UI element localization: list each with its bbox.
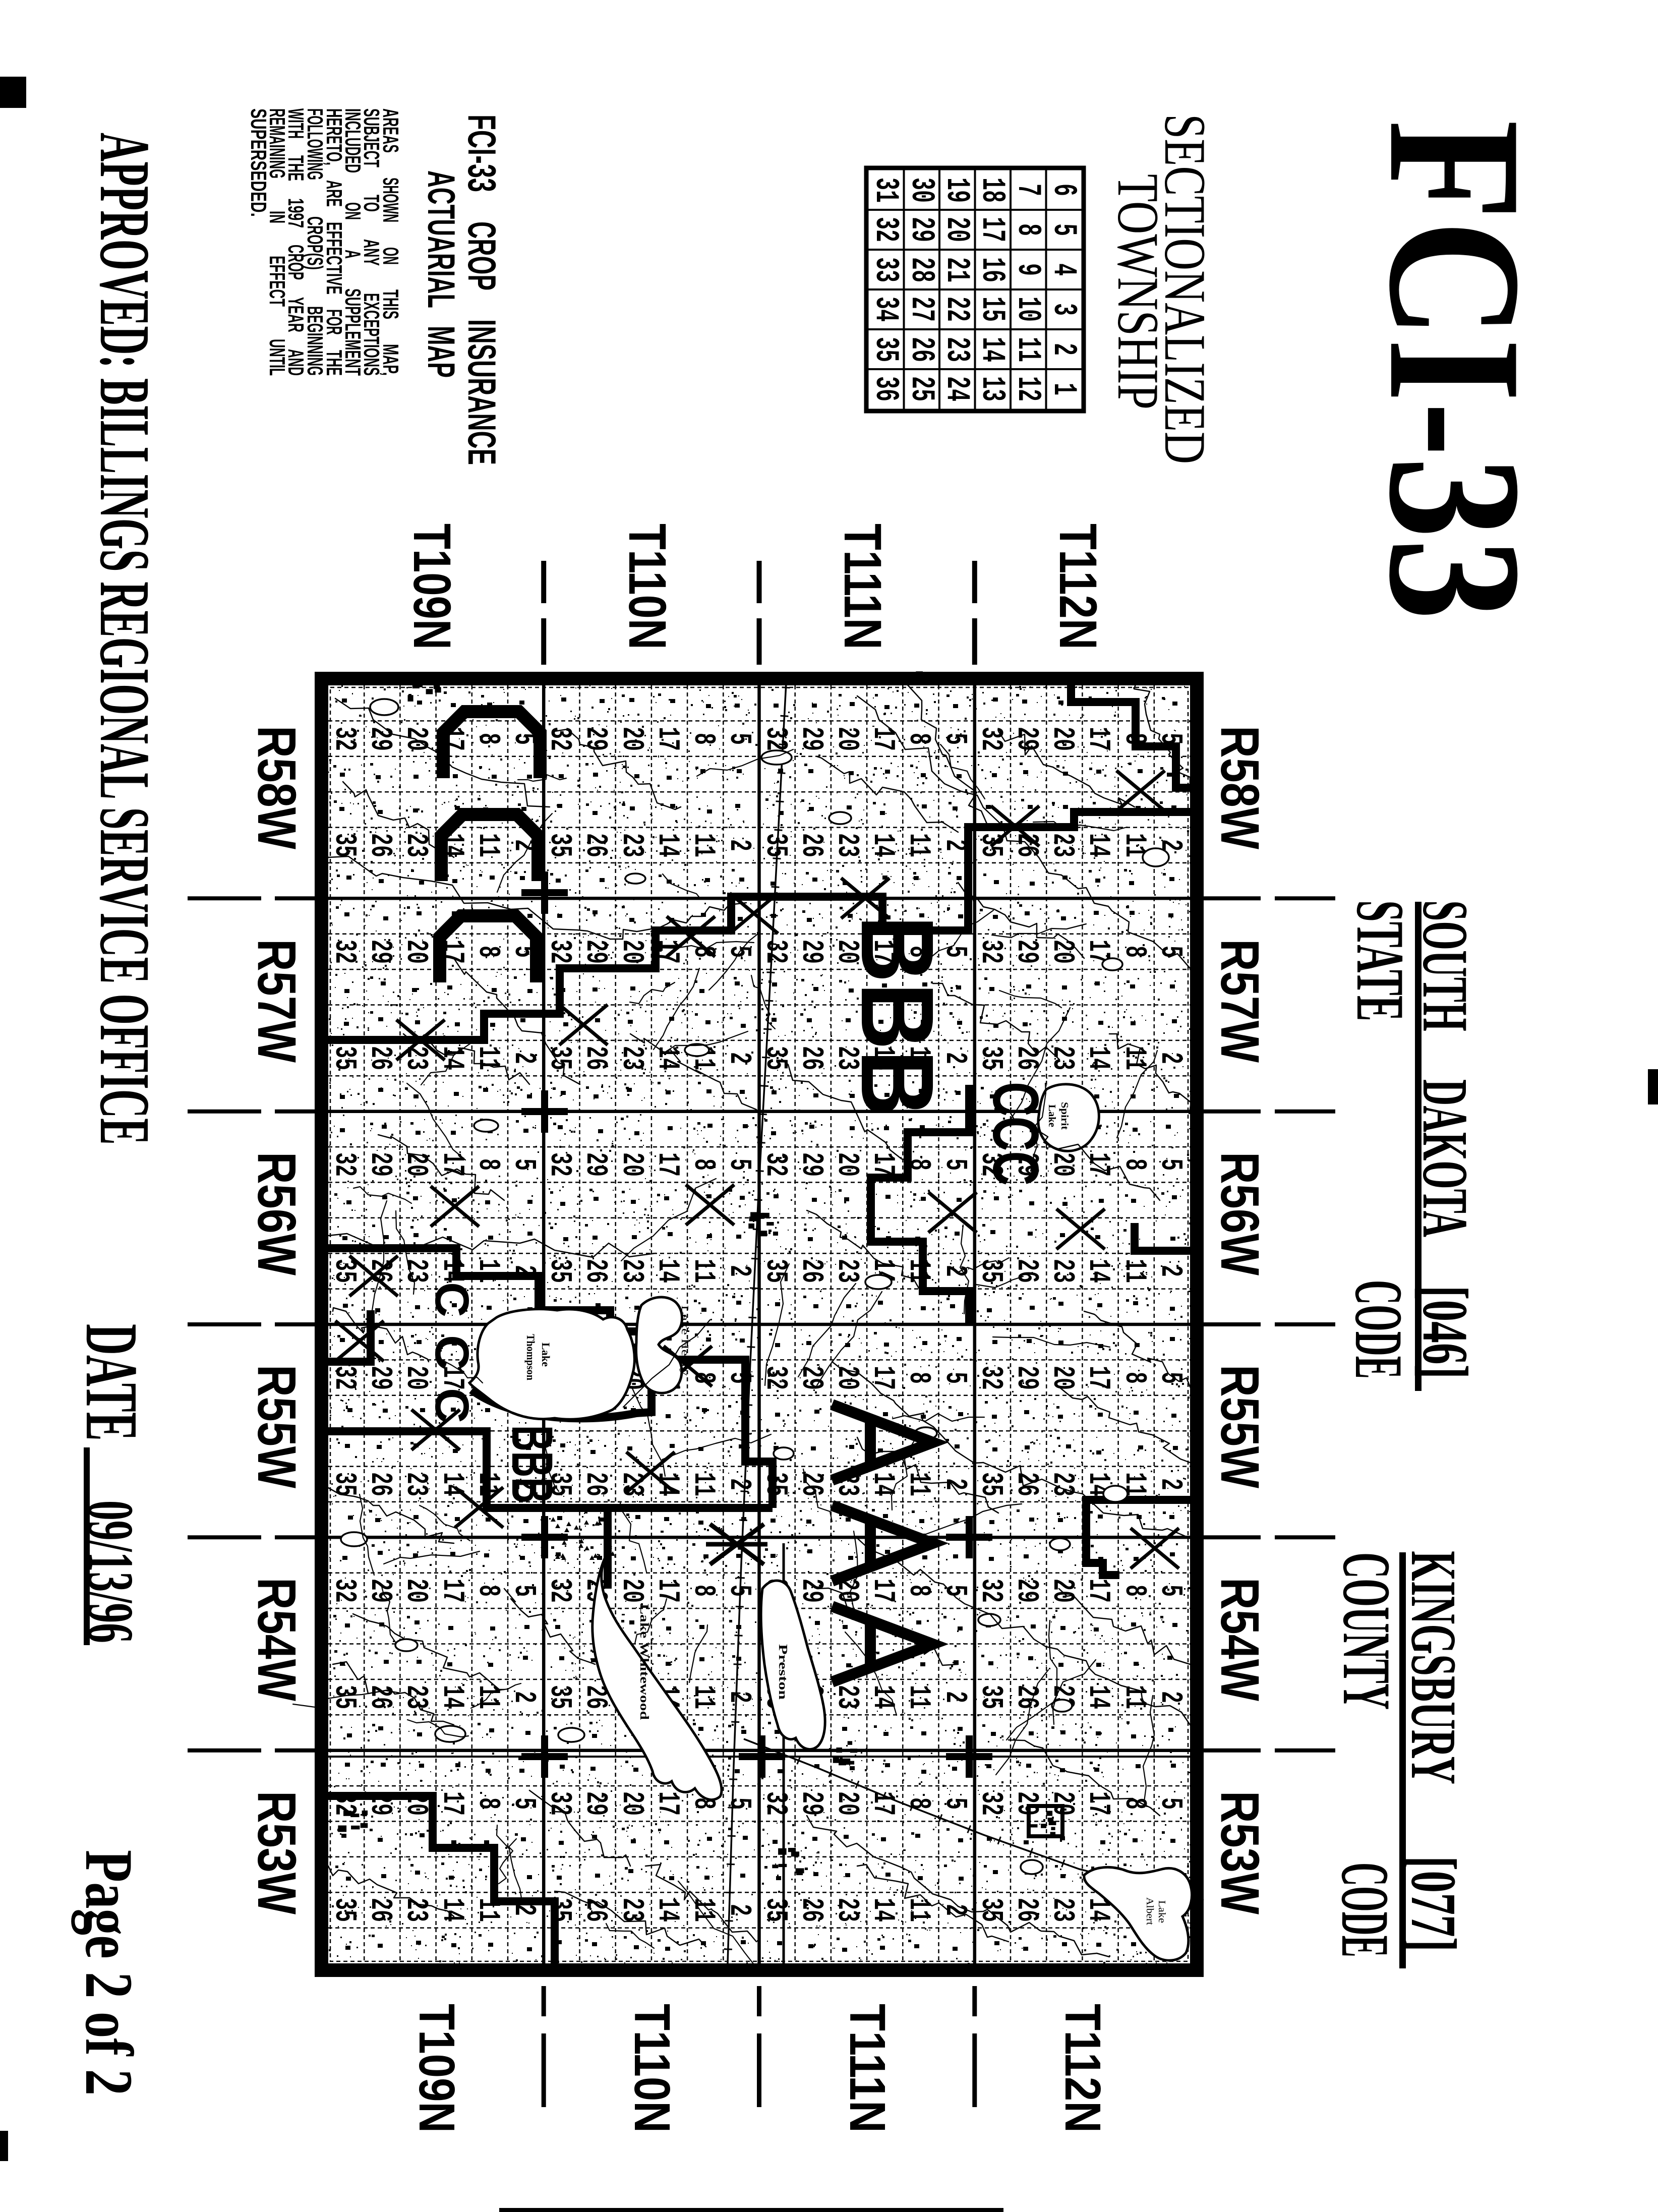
svg-text:20: 20 (1045, 1366, 1079, 1390)
svg-text:20: 20 (1045, 727, 1079, 751)
svg-text:19: 19 (938, 178, 976, 203)
svg-text:36: 36 (867, 376, 905, 401)
svg-text:17: 17 (865, 727, 900, 751)
svg-text:[077]: [077] (1398, 1856, 1469, 1952)
svg-text:32: 32 (758, 1366, 792, 1390)
svg-text:5: 5 (506, 1585, 541, 1597)
svg-text:17: 17 (1081, 1579, 1115, 1603)
svg-text:R57W: R57W (1210, 939, 1271, 1063)
svg-text:32: 32 (327, 1366, 361, 1390)
svg-text:29: 29 (794, 1366, 828, 1390)
svg-text:R53W: R53W (1210, 1791, 1271, 1914)
svg-text:14: 14 (1081, 1046, 1115, 1070)
svg-text:18: 18 (973, 178, 1011, 203)
svg-text:2: 2 (1045, 343, 1083, 356)
svg-text:11: 11 (686, 1685, 720, 1709)
svg-text:14: 14 (650, 1259, 684, 1283)
svg-text:5: 5 (1153, 946, 1187, 958)
svg-text:32: 32 (973, 1579, 1008, 1603)
svg-text:32: 32 (327, 1152, 361, 1177)
svg-text:T112N: T112N (1054, 2004, 1111, 2133)
svg-text:26: 26 (794, 1046, 828, 1070)
svg-text:EFFECT: EFFECT (265, 256, 289, 307)
svg-text:32: 32 (542, 1579, 576, 1603)
svg-text:5: 5 (1153, 1158, 1187, 1171)
svg-text:32: 32 (758, 940, 792, 964)
svg-text:14: 14 (1081, 833, 1115, 857)
svg-text:26: 26 (794, 1898, 828, 1922)
svg-text:5: 5 (937, 1797, 972, 1810)
svg-text:35: 35 (327, 1046, 361, 1070)
svg-text:2: 2 (506, 1052, 541, 1064)
svg-text:8: 8 (470, 1585, 505, 1597)
svg-text:26: 26 (1009, 1898, 1043, 1922)
svg-text:21: 21 (938, 257, 976, 282)
svg-text:13: 13 (973, 376, 1011, 401)
svg-text:11: 11 (686, 1259, 720, 1283)
svg-text:C: C (425, 1388, 479, 1423)
svg-text:INSURANCE: INSURANCE (460, 319, 504, 465)
svg-text:BBB: BBB (840, 915, 955, 1117)
svg-text:8: 8 (470, 1158, 505, 1171)
svg-text:29: 29 (578, 1152, 612, 1177)
svg-text:8: 8 (1009, 223, 1047, 236)
svg-text:35: 35 (327, 1685, 361, 1709)
svg-text:29: 29 (903, 217, 940, 242)
svg-text:14: 14 (973, 337, 1011, 362)
svg-text:35: 35 (327, 833, 361, 857)
svg-text:32: 32 (758, 727, 792, 751)
svg-text:R56W: R56W (1210, 1152, 1271, 1275)
svg-text:8: 8 (686, 733, 720, 745)
svg-text:17: 17 (650, 727, 684, 751)
svg-text:23: 23 (614, 1472, 648, 1496)
svg-text:11: 11 (901, 1685, 935, 1709)
svg-text:29: 29 (363, 1366, 397, 1390)
svg-text:8: 8 (901, 1585, 935, 1597)
svg-text:35: 35 (542, 1259, 576, 1283)
svg-text:CCC: CCC (979, 1082, 1051, 1186)
svg-text:35: 35 (973, 1472, 1008, 1496)
svg-text:29: 29 (578, 1791, 612, 1816)
svg-text:11: 11 (1117, 1259, 1151, 1283)
svg-text:26: 26 (903, 337, 940, 362)
svg-text:20: 20 (614, 1791, 648, 1816)
svg-text:32: 32 (758, 1152, 792, 1177)
svg-text:29: 29 (794, 940, 828, 964)
svg-text:29: 29 (1009, 1366, 1043, 1390)
svg-text:11: 11 (686, 1898, 720, 1922)
svg-text:2: 2 (937, 1691, 972, 1703)
svg-text:23: 23 (614, 1259, 648, 1283)
svg-text:26: 26 (363, 1472, 397, 1496)
svg-text:32: 32 (542, 940, 576, 964)
svg-text:T109N: T109N (408, 2004, 465, 2133)
svg-text:T111N: T111N (833, 523, 892, 650)
svg-text:23: 23 (1045, 833, 1079, 857)
svg-text:17: 17 (650, 1579, 684, 1603)
svg-text:8: 8 (470, 733, 505, 745)
svg-text:3: 3 (1045, 303, 1083, 316)
svg-text:28: 28 (903, 257, 940, 282)
svg-text:29: 29 (363, 1579, 397, 1603)
svg-text:C: C (425, 1335, 479, 1370)
svg-text:14: 14 (650, 1898, 684, 1922)
svg-text:MAP: MAP (420, 326, 462, 378)
svg-text:APPROVED: BILLINGS REGIONAL: APPROVED: BILLINGS REGIONAL SERVICE OFFI… (85, 133, 165, 1145)
svg-text:29: 29 (794, 727, 828, 751)
svg-text:7: 7 (1009, 184, 1047, 196)
svg-text:17: 17 (435, 1579, 469, 1603)
svg-text:33: 33 (867, 257, 905, 282)
svg-text:14: 14 (650, 833, 684, 857)
svg-text:26: 26 (578, 1259, 612, 1283)
svg-text:10: 10 (1009, 297, 1047, 322)
svg-text:20: 20 (830, 1791, 864, 1816)
svg-text:8: 8 (1117, 1372, 1151, 1384)
svg-text:FCI-33: FCI-33 (460, 114, 504, 192)
svg-text:20: 20 (614, 1152, 648, 1177)
svg-text:29: 29 (578, 940, 612, 964)
svg-text:26: 26 (363, 833, 397, 857)
svg-text:20: 20 (614, 1579, 648, 1603)
svg-text:Page 2 of 2: Page 2 of 2 (71, 1850, 146, 2095)
svg-text:20: 20 (830, 1152, 864, 1177)
svg-text:R55W: R55W (1210, 1365, 1271, 1488)
svg-text:26: 26 (363, 1898, 397, 1922)
svg-text:17: 17 (865, 1366, 900, 1390)
svg-text:32: 32 (973, 1366, 1008, 1390)
svg-text:35: 35 (542, 1685, 576, 1709)
svg-text:2: 2 (937, 1265, 972, 1277)
svg-text:32: 32 (542, 1152, 576, 1177)
svg-text:ARE: ARE (322, 180, 346, 207)
svg-text:35: 35 (327, 1898, 361, 1922)
svg-text:2: 2 (722, 1052, 756, 1064)
svg-text:11: 11 (686, 1472, 720, 1496)
svg-text:5: 5 (1045, 223, 1083, 236)
svg-text:5: 5 (937, 1372, 972, 1384)
svg-text:23: 23 (830, 833, 864, 857)
svg-text:23: 23 (1045, 1898, 1079, 1922)
svg-text:35: 35 (758, 833, 792, 857)
svg-text:29: 29 (1009, 1791, 1043, 1816)
svg-text:5: 5 (722, 1797, 756, 1810)
svg-text:R56W: R56W (247, 1152, 308, 1275)
svg-text:35: 35 (542, 1046, 576, 1070)
svg-text:25: 25 (903, 376, 940, 401)
svg-text:14: 14 (435, 1898, 469, 1922)
svg-text:15: 15 (973, 297, 1011, 322)
svg-text:17: 17 (650, 1791, 684, 1816)
svg-text:29: 29 (1009, 1579, 1043, 1603)
svg-text:23: 23 (398, 1046, 433, 1070)
svg-text:23: 23 (614, 1898, 648, 1922)
svg-text:29: 29 (1009, 940, 1043, 964)
svg-text:Lake: Lake (540, 1343, 552, 1367)
svg-text:FCI-33: FCI-33 (1350, 120, 1561, 620)
svg-text:Spirit: Spirit (1059, 1102, 1070, 1130)
svg-text:R54W: R54W (247, 1578, 308, 1701)
svg-text:11: 11 (470, 833, 505, 857)
svg-text:29: 29 (794, 1579, 828, 1603)
svg-text:35: 35 (973, 1259, 1008, 1283)
svg-text:SUPERSEDED.: SUPERSEDED. (246, 108, 271, 217)
svg-text:35: 35 (758, 1898, 792, 1922)
svg-text:Albert: Albert (1144, 1897, 1155, 1925)
svg-text:5: 5 (506, 1797, 541, 1810)
svg-text:17: 17 (1081, 1366, 1115, 1390)
svg-text:17: 17 (1081, 727, 1115, 751)
svg-text:T111N: T111N (839, 2004, 896, 2133)
svg-text:14: 14 (1081, 1259, 1115, 1283)
svg-text:09/13/96: 09/13/96 (74, 1500, 147, 1643)
svg-text:8: 8 (1117, 1585, 1151, 1597)
svg-text:17: 17 (973, 217, 1011, 242)
svg-text:8: 8 (1117, 1158, 1151, 1171)
svg-text:Preston: Preston (776, 1644, 789, 1700)
svg-text:16: 16 (973, 257, 1011, 282)
svg-text:5: 5 (937, 1585, 972, 1597)
svg-text:26: 26 (578, 1472, 612, 1496)
svg-text:11: 11 (1117, 1046, 1151, 1070)
svg-text:5: 5 (722, 1372, 756, 1384)
svg-text:8: 8 (901, 1797, 935, 1810)
svg-text:14: 14 (650, 1046, 684, 1070)
svg-text:24: 24 (938, 376, 976, 401)
svg-text:8: 8 (470, 1797, 505, 1810)
svg-text:29: 29 (363, 940, 397, 964)
svg-text:2: 2 (506, 1904, 541, 1916)
svg-text:34: 34 (867, 297, 905, 322)
svg-text:32: 32 (973, 1791, 1008, 1816)
svg-text:4: 4 (1045, 263, 1083, 276)
svg-text:17: 17 (1081, 1152, 1115, 1177)
svg-text:31: 31 (867, 178, 905, 203)
svg-text:20: 20 (398, 940, 433, 964)
svg-text:35: 35 (973, 1898, 1008, 1922)
svg-text:R58W: R58W (1210, 726, 1271, 849)
svg-text:23: 23 (830, 1259, 864, 1283)
svg-text:5: 5 (722, 1585, 756, 1597)
svg-text:CODE: CODE (1341, 1280, 1416, 1379)
svg-text:27: 27 (903, 297, 940, 322)
svg-text:32: 32 (327, 727, 361, 751)
svg-text:32: 32 (327, 940, 361, 964)
svg-text:35: 35 (867, 337, 905, 362)
svg-text:11: 11 (901, 1898, 935, 1922)
svg-text:CODE: CODE (1327, 1862, 1402, 1957)
svg-text:2: 2 (722, 1265, 756, 1277)
svg-text:14: 14 (1081, 1685, 1115, 1709)
svg-text:26: 26 (794, 1259, 828, 1283)
svg-text:5: 5 (1153, 1797, 1187, 1810)
svg-text:11: 11 (901, 1259, 935, 1283)
svg-text:23: 23 (398, 833, 433, 857)
svg-text:29: 29 (578, 727, 612, 751)
svg-text:32: 32 (867, 217, 905, 242)
svg-text:5: 5 (937, 733, 972, 745)
svg-text:29: 29 (363, 727, 397, 751)
svg-text:Thompson: Thompson (524, 1334, 537, 1380)
svg-text:14: 14 (435, 1685, 469, 1709)
svg-text:8: 8 (686, 1158, 720, 1171)
svg-text:32: 32 (973, 940, 1008, 964)
svg-text:14: 14 (865, 1898, 900, 1922)
svg-text:8: 8 (1117, 946, 1151, 958)
svg-text:8: 8 (686, 1585, 720, 1597)
svg-text:35: 35 (542, 833, 576, 857)
svg-text:6: 6 (1045, 184, 1083, 196)
svg-text:11: 11 (686, 833, 720, 857)
svg-text:23: 23 (938, 337, 976, 362)
svg-text:STATE: STATE (1342, 900, 1417, 1021)
svg-text:32: 32 (327, 1579, 361, 1603)
svg-text:26: 26 (363, 1046, 397, 1070)
svg-text:ACTUARIAL: ACTUARIAL (420, 170, 462, 308)
svg-text:5: 5 (1153, 1585, 1187, 1597)
svg-text:23: 23 (830, 1898, 864, 1922)
svg-text:1: 1 (1045, 383, 1083, 395)
svg-text:8: 8 (901, 1372, 935, 1384)
svg-text:8: 8 (901, 733, 935, 745)
svg-text:32: 32 (758, 1791, 792, 1816)
svg-text:22: 22 (938, 297, 976, 322)
svg-text:TOWNSHIP: TOWNSHIP (1105, 174, 1170, 410)
svg-text:R58W: R58W (247, 726, 308, 849)
svg-text:KINGSBURY: KINGSBURY (1398, 1551, 1469, 1784)
svg-text:2: 2 (722, 1904, 756, 1916)
svg-text:R55W: R55W (247, 1365, 308, 1488)
svg-text:Lake: Lake (1156, 1900, 1167, 1923)
svg-text:T109N: T109N (402, 523, 461, 650)
svg-text:23: 23 (614, 1046, 648, 1070)
svg-text:29: 29 (1009, 727, 1043, 751)
svg-text:2: 2 (1153, 1478, 1187, 1490)
svg-text:14: 14 (865, 1685, 900, 1709)
svg-text:26: 26 (1009, 1685, 1043, 1709)
svg-text:20: 20 (398, 1152, 433, 1177)
svg-text:23: 23 (614, 833, 648, 857)
svg-text:20: 20 (398, 1579, 433, 1603)
svg-text:C: C (425, 1282, 479, 1317)
svg-text:R57W: R57W (247, 939, 308, 1063)
svg-text:20: 20 (938, 217, 976, 242)
svg-text:R54W: R54W (1210, 1578, 1271, 1701)
svg-text:35: 35 (973, 1685, 1008, 1709)
svg-text:T110N: T110N (624, 2004, 680, 2133)
svg-text:T110N: T110N (618, 523, 677, 650)
svg-text:17: 17 (865, 1152, 900, 1177)
svg-text:CROP: CROP (460, 221, 504, 290)
svg-text:23: 23 (1045, 1259, 1079, 1283)
svg-text:DATE: DATE (70, 1324, 153, 1441)
svg-text:20: 20 (614, 727, 648, 751)
svg-text:29: 29 (794, 1152, 828, 1177)
svg-text:17: 17 (435, 1791, 469, 1816)
svg-text:26: 26 (578, 833, 612, 857)
svg-text:14: 14 (865, 833, 900, 857)
svg-text:35: 35 (758, 1259, 792, 1283)
svg-text:T112N: T112N (1048, 523, 1107, 650)
svg-text:32: 32 (973, 727, 1008, 751)
svg-text:23: 23 (398, 1259, 433, 1283)
svg-text:Lake Whitewood: Lake Whitewood (637, 1604, 650, 1720)
svg-text:26: 26 (794, 833, 828, 857)
svg-text:12: 12 (1009, 376, 1047, 401)
svg-text:5: 5 (1153, 1372, 1187, 1384)
svg-text:29: 29 (794, 1791, 828, 1816)
svg-text:2: 2 (1153, 1265, 1187, 1277)
svg-text:5: 5 (506, 1158, 541, 1171)
svg-text:2: 2 (722, 1478, 756, 1490)
svg-text:UNTIL: UNTIL (265, 339, 289, 376)
svg-text:2: 2 (1153, 1691, 1187, 1703)
svg-text:23: 23 (830, 1685, 864, 1709)
svg-text:35: 35 (973, 1046, 1008, 1070)
svg-text:11: 11 (1009, 337, 1047, 362)
svg-text:COUNTY: COUNTY (1329, 1552, 1404, 1710)
svg-text:5: 5 (937, 1158, 972, 1171)
svg-text:20: 20 (1045, 940, 1079, 964)
svg-text:17: 17 (865, 1579, 900, 1603)
svg-text:5: 5 (722, 733, 756, 745)
svg-text:30: 30 (903, 178, 940, 203)
svg-text:5: 5 (722, 1158, 756, 1171)
svg-text:9: 9 (1009, 263, 1047, 276)
svg-text:BBB: BBB (500, 1425, 564, 1503)
svg-text:R53W: R53W (247, 1791, 308, 1914)
